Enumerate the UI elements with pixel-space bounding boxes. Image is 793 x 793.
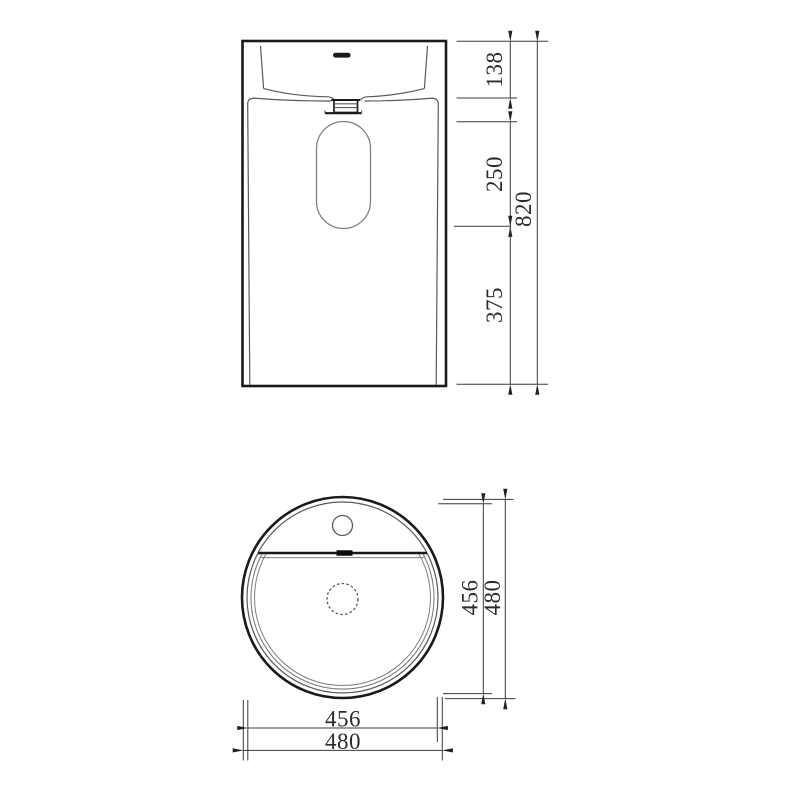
basin-inner-wall-left [261, 46, 264, 89]
dim-label-outer-diameter-horizontal: 480 [325, 729, 361, 754]
drain-trap-body [334, 100, 358, 113]
dim-label-inner-diameter-vertical: 456 [458, 580, 483, 616]
front-view [243, 41, 447, 386]
pedestal-edge-right [365, 98, 439, 385]
drain-hole [327, 584, 358, 615]
technical-drawing-canvas: 138 250 375 820 456 480 456 480 [0, 0, 793, 793]
dim-label-cutout-to-floor: 375 [482, 287, 507, 323]
top-view [242, 497, 443, 698]
faucet-hole [333, 516, 353, 536]
drain-funnel-right [361, 97, 367, 100]
pedestal-edge-left [248, 98, 332, 385]
front-outline [243, 41, 447, 386]
pedestal-cutout-capsule [317, 122, 371, 229]
dim-label-basin-height: 138 [482, 52, 507, 88]
dim-label-inner-diameter-horizontal: 456 [325, 707, 361, 732]
basin-bottom-left [264, 89, 329, 97]
top-view-dimensions: 456 480 456 480 [243, 499, 515, 760]
outer-rim-circle [242, 497, 443, 698]
drawing-svg: 138 250 375 820 456 480 456 480 [0, 0, 793, 793]
overflow-slot-front [333, 53, 351, 58]
front-view-dimensions: 138 250 375 820 [454, 41, 548, 384]
inner-rim-circle [247, 502, 438, 693]
basin-inner-wall-right [424, 46, 427, 89]
dim-label-overall-height: 820 [511, 191, 536, 227]
dim-label-cutout-height: 250 [482, 156, 507, 192]
dim-label-outer-diameter-vertical: 480 [480, 580, 505, 616]
basin-bottom-right [367, 89, 425, 97]
